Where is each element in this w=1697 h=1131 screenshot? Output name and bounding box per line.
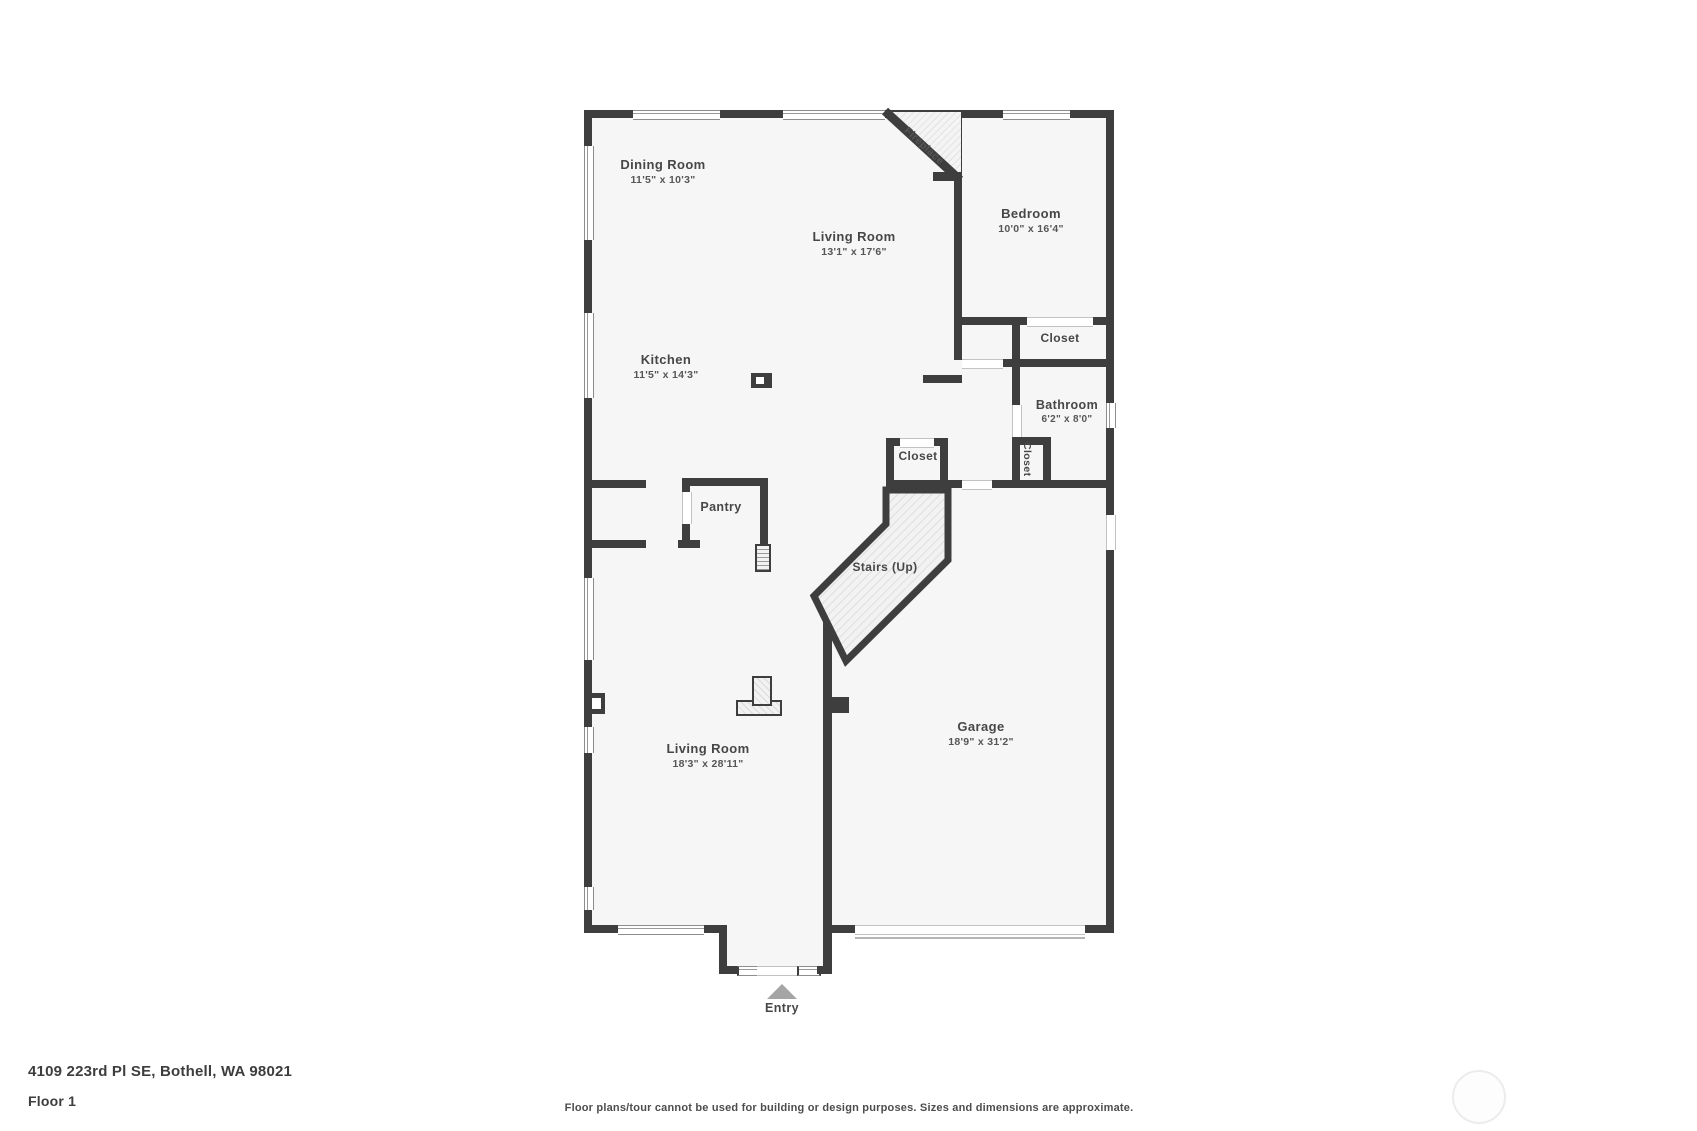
disclaimer-text: Floor plans/tour cannot be used for buil… [565, 1102, 1134, 1114]
window [783, 110, 885, 120]
window [584, 313, 594, 398]
room-label-bedroom: Bedroom 10'0" x 16'4" [998, 206, 1064, 235]
room-dims: 6'2" x 8'0" [1036, 414, 1098, 425]
wall-segment [584, 480, 646, 488]
entry-direction-icon [767, 984, 797, 999]
stairs-shape [780, 470, 970, 690]
label-closet-bedroom: Closet [1040, 331, 1079, 345]
window [584, 727, 594, 753]
wall-segment [584, 753, 592, 887]
closet-door-opening [1027, 317, 1093, 327]
wall-segment [1093, 317, 1112, 325]
label-closet-stairs: Closet [898, 449, 937, 463]
wall-stub [831, 697, 849, 713]
label-entry: Entry [765, 1001, 799, 1015]
window [1003, 110, 1070, 120]
wall-segment [1012, 317, 1020, 405]
room-dims: 13'1" x 17'6" [812, 246, 895, 258]
wall-segment [678, 540, 700, 548]
watermark-circle [1452, 1070, 1506, 1124]
bathroom-door-opening [1012, 405, 1022, 440]
half-wall-fixture [752, 676, 772, 706]
wall-segment [584, 398, 592, 578]
wall-segment [682, 478, 690, 492]
door-opening [1106, 515, 1116, 550]
property-address: 4109 223rd Pl SE, Bothell, WA 98021 [28, 1063, 292, 1080]
wall-segment [1085, 925, 1112, 933]
garage-door [855, 925, 1085, 935]
room-label-bathroom: Bathroom 6'2" x 8'0" [1036, 398, 1098, 425]
wall-segment [584, 540, 646, 548]
wall-segment [584, 925, 618, 933]
room-name: Kitchen [634, 352, 699, 367]
pantry-door-opening [682, 492, 692, 524]
wall-segment [1106, 428, 1114, 515]
room-name: Dining Room [620, 157, 705, 172]
wall-segment [682, 478, 768, 486]
label-pantry: Pantry [700, 500, 741, 514]
wall-segment [720, 110, 783, 118]
room-label-dining: Dining Room 11'5" x 10'3" [620, 157, 705, 186]
room-dims: 18'9" x 31'2" [948, 736, 1014, 748]
room-dims: 11'5" x 14'3" [634, 369, 699, 381]
entry-door-opening [757, 966, 797, 976]
room-label-living-upper: Living Room 13'1" x 17'6" [812, 229, 895, 258]
floor-area-entry [723, 929, 828, 970]
room-name: Bathroom [1036, 398, 1098, 412]
wall-segment [923, 375, 962, 383]
room-dims: 18'3" x 28'11" [666, 758, 749, 770]
window [584, 146, 594, 240]
floor-title: Floor 1 [28, 1093, 76, 1109]
wall-segment [992, 480, 1112, 488]
stairs-closet-door-opening [900, 438, 934, 448]
room-name: Garage [948, 719, 1014, 734]
room-name: Bedroom [998, 206, 1064, 221]
wall-segment [584, 240, 592, 313]
room-label-garage: Garage 18'9" x 31'2" [948, 719, 1014, 748]
wall-niche-inner [592, 698, 601, 709]
room-name: Living Room [812, 229, 895, 244]
water-heater-fixture [755, 544, 771, 572]
label-closet-bathroom: Closet [1021, 442, 1033, 486]
wall-segment [1106, 550, 1114, 933]
room-name: Living Room [666, 741, 749, 756]
window [1106, 403, 1116, 428]
bedroom-door-opening [962, 359, 1003, 369]
wall-segment [584, 110, 592, 146]
room-label-living-lower: Living Room 18'3" x 28'11" [666, 741, 749, 770]
room-label-kitchen: Kitchen 11'5" x 14'3" [634, 352, 699, 381]
label-stairs-up: Stairs (Up) [852, 560, 917, 574]
wall-segment [719, 966, 737, 974]
garage-door-line [855, 937, 1085, 939]
window [618, 925, 704, 935]
floor-plan-canvas: Dining Room 11'5" x 10'3" Living Room 13… [0, 0, 1697, 1131]
window [584, 578, 594, 660]
room-dims: 11'5" x 10'3" [620, 174, 705, 186]
window [584, 887, 594, 910]
window [633, 110, 720, 120]
room-dims: 10'0" x 16'4" [998, 223, 1064, 235]
kitchen-sink-basin [756, 377, 764, 384]
